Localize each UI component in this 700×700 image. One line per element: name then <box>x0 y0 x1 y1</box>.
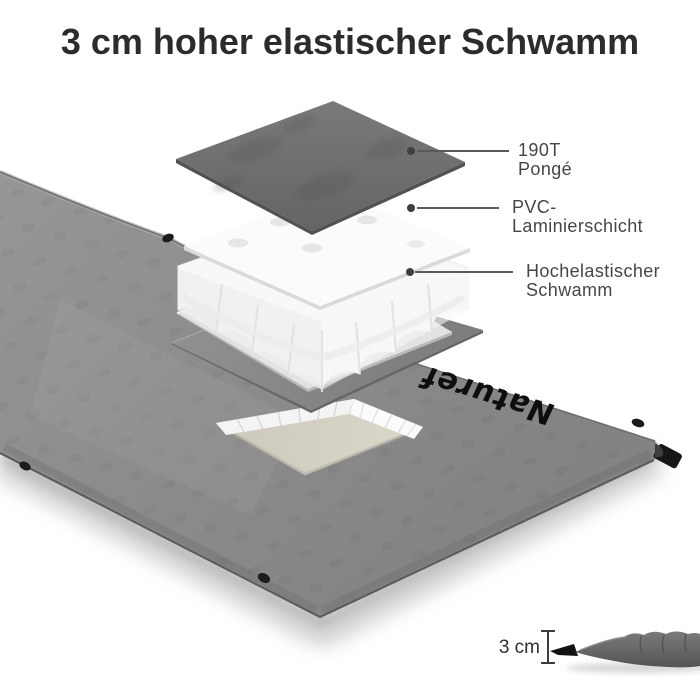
measure-label: 3 cm <box>496 637 540 659</box>
callout-dot <box>407 204 415 212</box>
callout-line <box>417 150 509 152</box>
fabric-layer <box>176 101 465 235</box>
callout-label: PVC-Laminierschicht <box>512 198 643 236</box>
callout-label: Hochelastischer Schwamm <box>526 262 696 300</box>
callout-line <box>415 271 513 273</box>
callout-dot <box>407 147 415 155</box>
mini-mat <box>550 632 700 674</box>
callout-dot <box>406 268 414 276</box>
callout-line <box>417 207 499 209</box>
mini-mat-body <box>575 632 700 668</box>
product-infographic: 3 cm hoher elastischer Schwamm <box>0 0 700 700</box>
callout-label: 190T Pongé <box>518 141 572 179</box>
mini-mat-valve <box>550 644 578 656</box>
snap-button <box>631 417 646 429</box>
product-illustration: Naturef <box>0 0 700 700</box>
measure-bracket <box>541 631 555 663</box>
